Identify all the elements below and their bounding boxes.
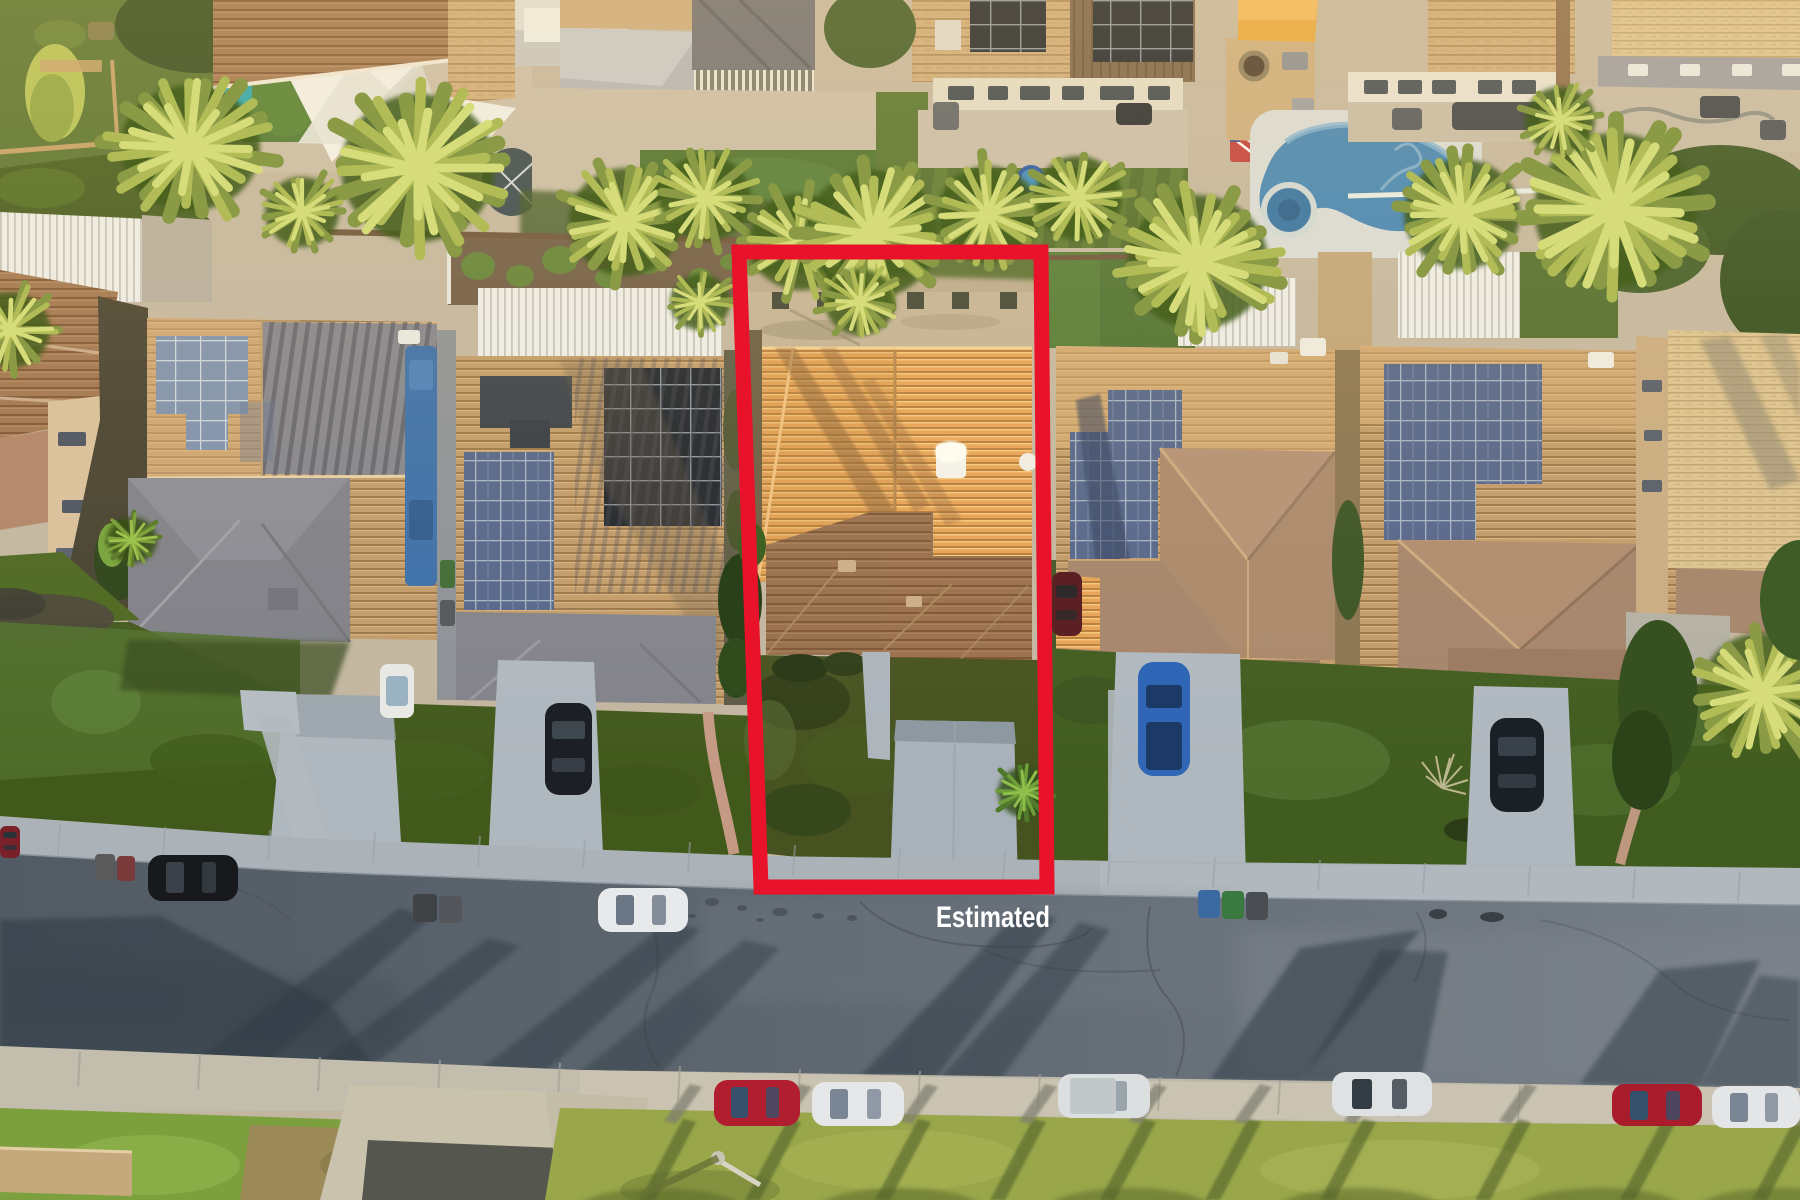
svg-text:Estimated: Estimated	[936, 901, 1050, 934]
